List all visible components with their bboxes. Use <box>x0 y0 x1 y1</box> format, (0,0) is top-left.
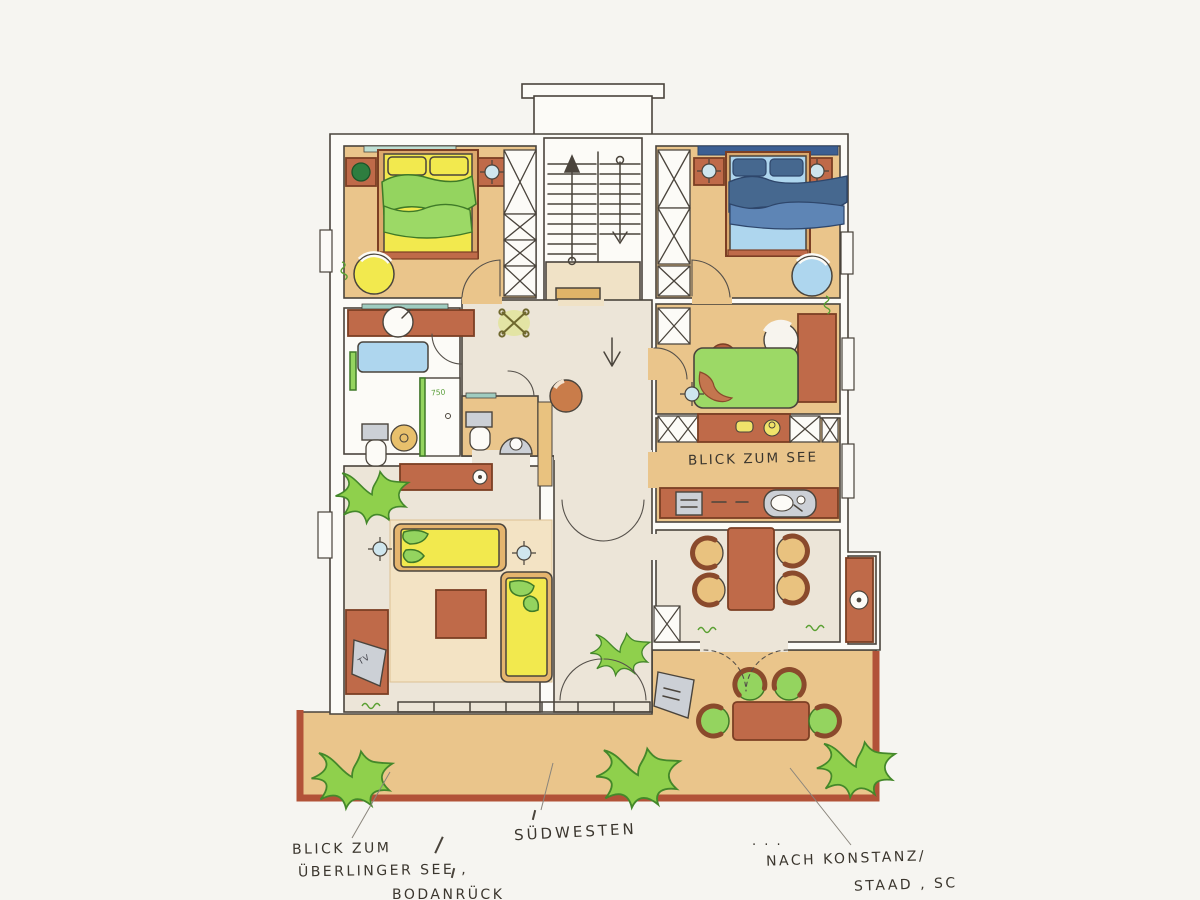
kettle-icon <box>736 421 753 432</box>
desk <box>798 314 836 402</box>
cabinet <box>654 606 680 642</box>
kitchen-view-note: BLICK ZUM SEE <box>688 449 818 468</box>
coffee-table <box>436 590 486 638</box>
stool <box>391 425 417 451</box>
shower-label: 750 <box>431 388 446 398</box>
dining-chair <box>693 538 723 568</box>
kitchen-counter-sink <box>660 488 838 518</box>
daybed-green <box>694 348 798 408</box>
bathtub-icon <box>358 342 428 372</box>
dining-table <box>728 528 774 610</box>
wardrobe <box>504 150 536 296</box>
double-bed-yellow <box>378 150 478 259</box>
toilet-icon <box>466 412 492 427</box>
terrace-chair <box>809 706 839 736</box>
dining-chair <box>777 536 807 566</box>
potted-plant-icon <box>352 163 370 181</box>
towel <box>350 352 356 390</box>
cabinet <box>658 308 690 344</box>
wardrobe <box>658 150 690 296</box>
upper-cabinet <box>822 418 838 442</box>
view-left-note-line3: BODANRÜCK <box>392 887 504 900</box>
upper-cabinet <box>658 416 698 442</box>
toilet-icon <box>362 424 388 466</box>
view-left-note-line1: BLICK ZUM <box>292 840 392 858</box>
hall-shelf <box>538 402 552 486</box>
view-left-note-line2: ÜBERLINGER SEE , <box>298 862 468 881</box>
sideboard-nook <box>846 558 873 642</box>
corridor-floor <box>554 456 652 712</box>
dining-chair <box>695 575 725 605</box>
sofa-yellow-vertical <box>501 572 552 682</box>
sofa-yellow-horizontal <box>394 524 506 571</box>
view-right-dots: . . . <box>752 834 783 849</box>
terrace-table <box>733 702 809 740</box>
scanned-floor-plan: BLICK ZUM SEE SÜDWESTEN BLICK ZUM ÜBERLI… <box>0 0 1200 900</box>
dining-chair <box>777 573 807 603</box>
terrace-chair <box>699 706 729 736</box>
floor-plan-drawing <box>0 0 1200 900</box>
upper-cabinet <box>790 416 820 442</box>
